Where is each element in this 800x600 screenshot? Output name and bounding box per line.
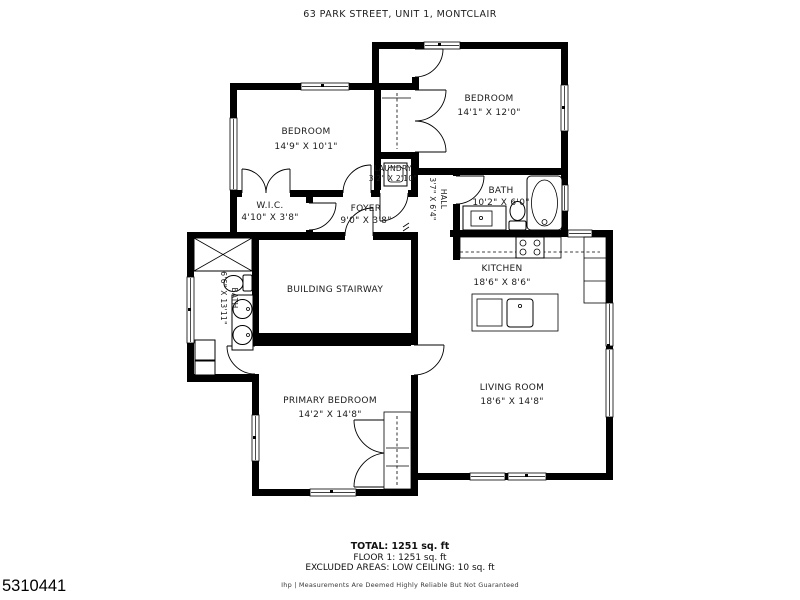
room-dims: 18'6" X 8'6" xyxy=(473,278,530,288)
listing-id: 5310441 xyxy=(2,577,66,596)
room-name: BATH xyxy=(488,186,513,196)
room-label-laundry: LAUNDRY 3'2" X 2'10" xyxy=(369,164,417,183)
room-dims: 14'1" X 12'0" xyxy=(457,108,520,118)
room-dims: 14'9" X 10'1" xyxy=(274,142,337,152)
room-name: BEDROOM xyxy=(281,127,330,137)
bedroom2-closet xyxy=(382,93,411,149)
room-label-stairway: BUILDING STAIRWAY xyxy=(287,285,383,295)
room-dims: 3'7" X 6'4" xyxy=(428,177,437,220)
room-label-bedroom2: BEDROOM 14'1" X 12'0" xyxy=(457,94,520,118)
room-name: BUILDING STAIRWAY xyxy=(287,285,383,295)
wall-break-mark xyxy=(403,223,409,231)
room-label-primary-bedroom: PRIMARY BEDROOM 14'2" X 14'8" xyxy=(283,396,377,420)
room-dims: 9'0" X 3'8" xyxy=(340,216,391,226)
shower xyxy=(194,238,252,271)
room-name: PRIMARY BEDROOM xyxy=(283,396,377,406)
room-name: FOYER xyxy=(351,204,382,214)
door-swings xyxy=(227,49,484,487)
room-label-wic: W.I.C. 4'10" X 3'8" xyxy=(241,201,298,223)
excluded-area-text: EXCLUDED AREAS: LOW CEILING: 10 sq. ft xyxy=(0,563,800,573)
room-name: BATH xyxy=(230,287,239,308)
kitchen-island xyxy=(472,294,558,331)
disclaimer-text: Ihp | Measurements Are Deemed Highly Rel… xyxy=(0,581,800,589)
primary-closet xyxy=(384,412,411,489)
room-label-hall: HALL 3'7" X 6'4" xyxy=(428,177,448,220)
bench xyxy=(195,340,215,375)
room-dims: 14'2" X 14'8" xyxy=(298,410,361,420)
room-label-bedroom1: BEDROOM 14'9" X 10'1" xyxy=(274,127,337,152)
total-area-text: TOTAL: 1251 sq. ft xyxy=(0,541,800,552)
room-dims: 6'6" X 13'11" xyxy=(219,271,228,324)
vanity-sink xyxy=(463,206,506,230)
room-name: HALL xyxy=(439,189,448,210)
room-dims: 10'2" X 6'0" xyxy=(472,198,529,208)
side-counter xyxy=(584,237,606,303)
room-name: LAUNDRY xyxy=(374,164,412,173)
room-name: W.I.C. xyxy=(256,201,283,211)
room-label-kitchen: KITCHEN 18'6" X 8'6" xyxy=(473,264,530,288)
room-label-living-room: LIVING ROOM 18'6" X 14'8" xyxy=(480,383,545,407)
room-dims: 4'10" X 3'8" xyxy=(241,213,298,223)
floor-plan-svg: BEDROOM 14'9" X 10'1" BEDROOM 14'1" X 12… xyxy=(0,0,800,600)
room-label-foyer: FOYER 9'0" X 3'8" xyxy=(340,204,391,226)
floor-plan-page: 63 PARK STREET, UNIT 1, MONTCLAIR xyxy=(0,0,800,600)
room-name: BEDROOM xyxy=(464,94,513,104)
stove xyxy=(516,237,544,258)
floor-area-text: FLOOR 1: 1251 sq. ft xyxy=(0,553,800,563)
room-name: LIVING ROOM xyxy=(480,383,545,393)
room-dims: 18'6" X 14'8" xyxy=(480,397,543,407)
kitchen-counter xyxy=(460,237,561,258)
room-dims: 3'2" X 2'10" xyxy=(369,174,417,183)
room-name: KITCHEN xyxy=(481,264,522,274)
bathtub-icon xyxy=(527,176,562,230)
